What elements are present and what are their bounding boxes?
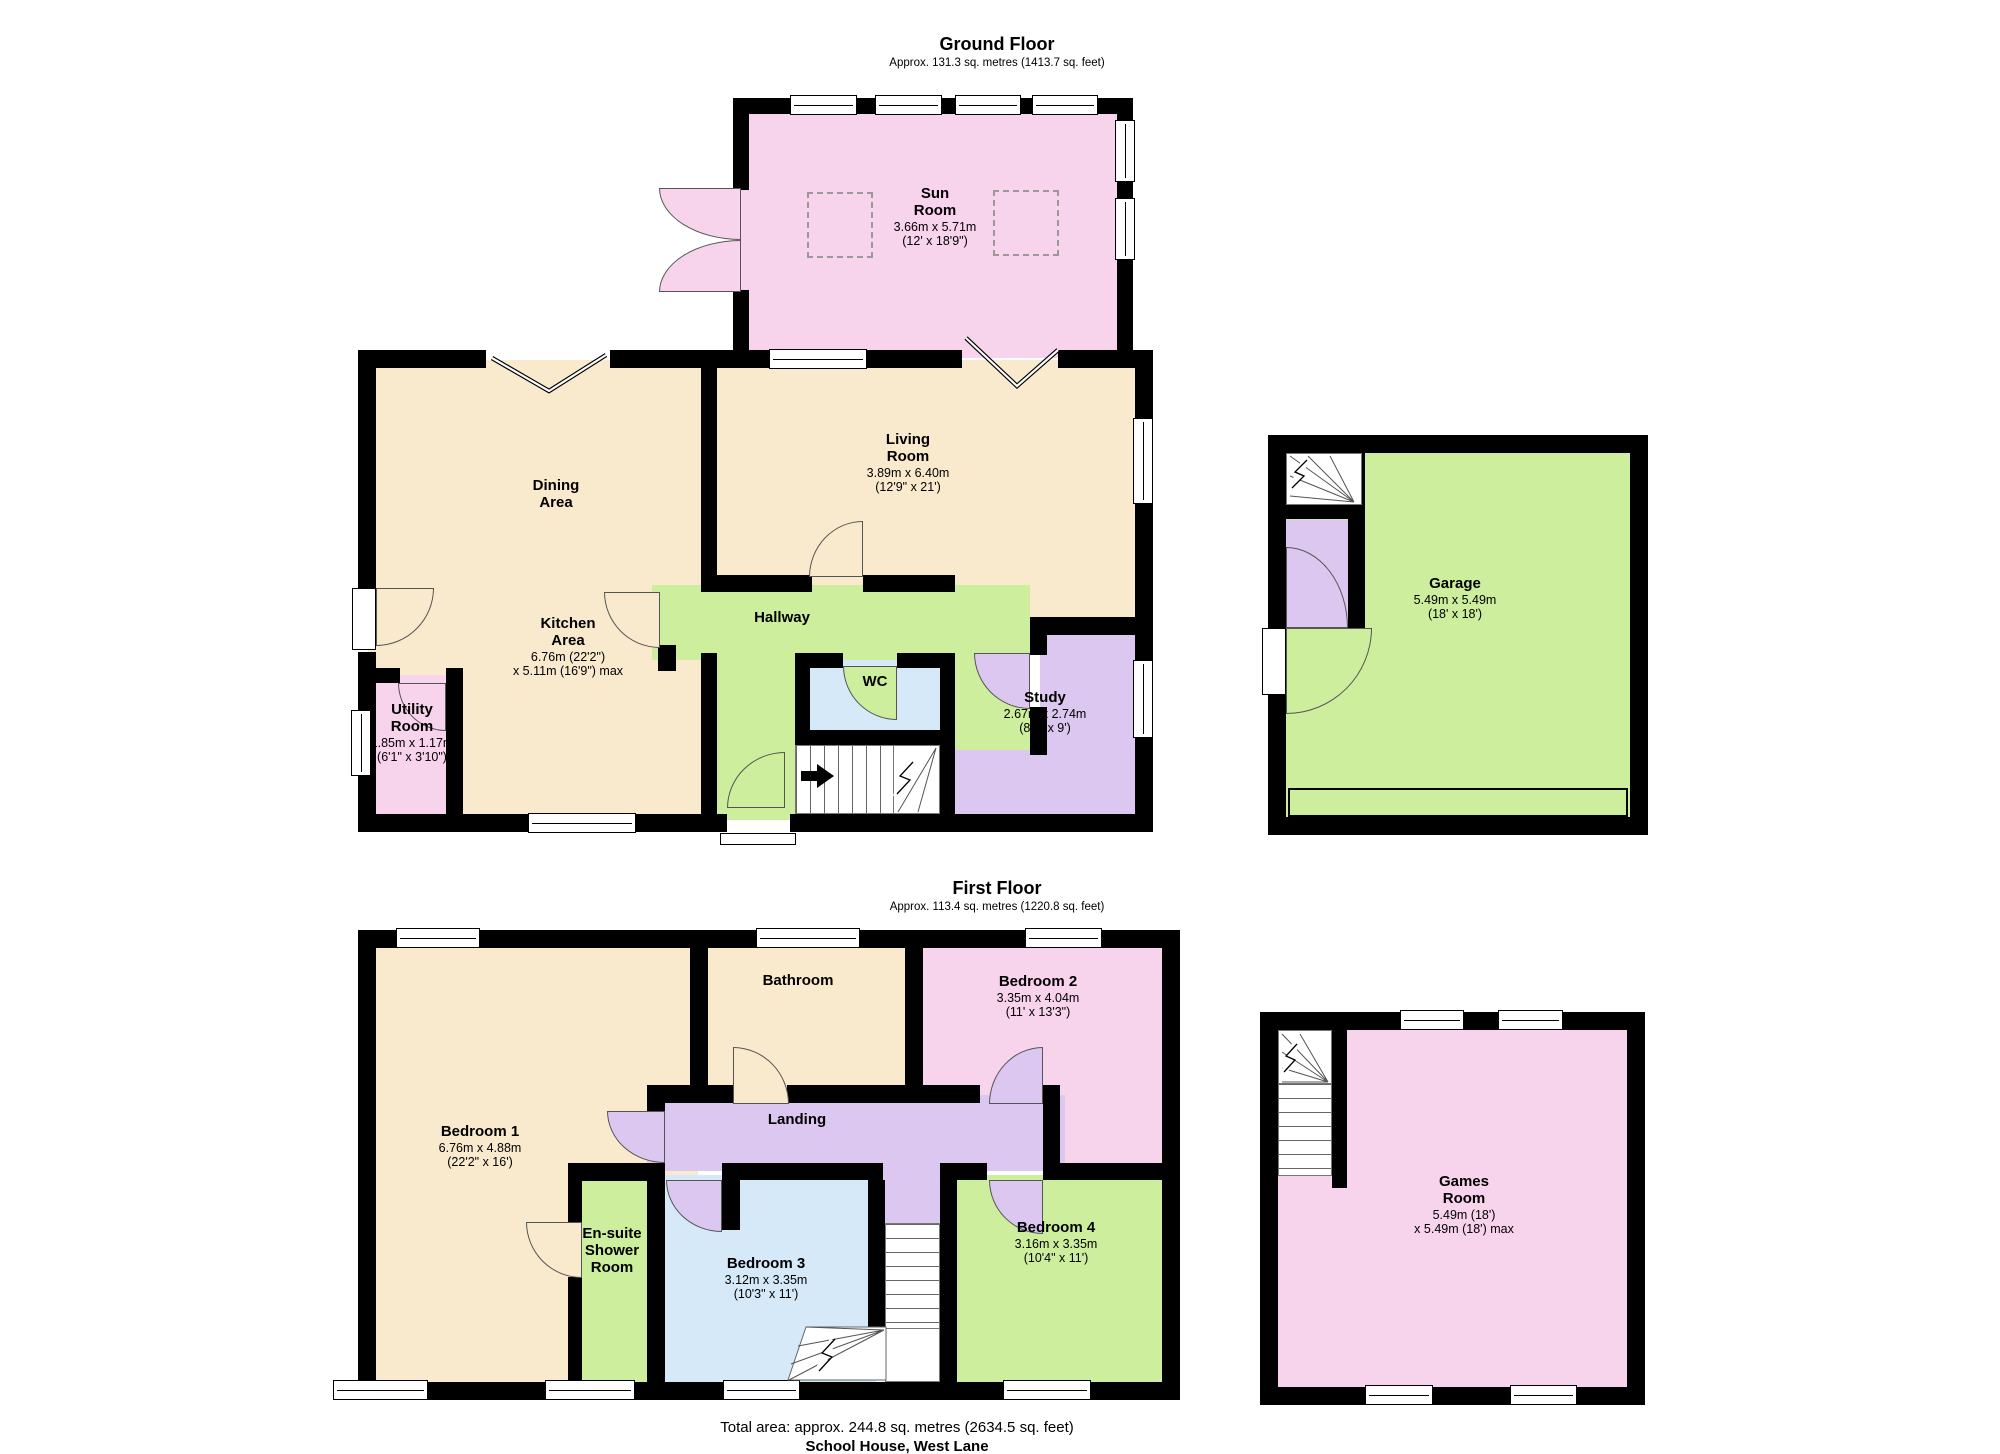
- wall: [690, 930, 708, 1090]
- wall: [1260, 1012, 1278, 1405]
- stairs: [893, 745, 940, 814]
- wall: [446, 668, 463, 683]
- stairs: [1286, 453, 1362, 505]
- door-leaf: [352, 588, 376, 650]
- room-landing: [647, 1095, 1065, 1171]
- window: [396, 928, 480, 948]
- skylight: [993, 190, 1059, 256]
- room-label-wc: WC: [863, 674, 888, 691]
- window: [1133, 418, 1153, 504]
- wall: [1627, 1012, 1645, 1405]
- window: [1115, 198, 1135, 260]
- wall: [658, 645, 676, 671]
- wall: [1268, 695, 1286, 835]
- floor-area-text: Approx. 113.4 sq. metres (1220.8 sq. fee…: [787, 901, 1207, 913]
- room-label-study: Study 2.67m x 2.74m (8'9" x 9'): [1004, 690, 1087, 735]
- room-label-games-room: Games Room 5.49m (18') x 5.49m (18') max: [1414, 1174, 1514, 1236]
- window: [1365, 1385, 1433, 1405]
- wall: [1030, 617, 1153, 635]
- room-bedroom-2: [1050, 1085, 1170, 1173]
- wall: [647, 1163, 665, 1382]
- skylight: [807, 192, 873, 258]
- porch-step: [720, 833, 796, 845]
- room-label-living-room: Living Room 3.89m x 6.40m (12'9" x 21'): [867, 432, 950, 494]
- floor-title-text: First Floor: [787, 878, 1207, 899]
- window: [769, 349, 867, 369]
- wall: [1043, 1085, 1060, 1103]
- wall: [865, 350, 962, 368]
- property-address: School House, West Lane: [805, 1438, 988, 1454]
- room-label-landing: Landing: [768, 1112, 826, 1129]
- floorplan-canvas: Ground Floor Approx. 131.3 sq. metres (1…: [0, 0, 2000, 1454]
- window: [1032, 95, 1098, 115]
- door-arc: [659, 240, 741, 292]
- wall: [795, 730, 940, 745]
- wall: [376, 668, 400, 683]
- wall: [1268, 435, 1648, 453]
- room-label-garage: Garage 5.49m x 5.49m (18' x 18'): [1414, 576, 1497, 621]
- wall: [1630, 435, 1648, 835]
- wall: [940, 653, 955, 814]
- room-label-ensuite: En-suite Shower Room: [577, 1226, 647, 1276]
- window: [528, 813, 636, 833]
- wall: [358, 930, 376, 1400]
- first-floor-title: First Floor Approx. 113.4 sq. metres (12…: [787, 878, 1207, 913]
- window: [351, 710, 371, 776]
- wall: [568, 1163, 582, 1222]
- wall: [957, 1163, 987, 1180]
- window: [1510, 1385, 1577, 1405]
- window: [875, 95, 942, 115]
- wall: [1162, 930, 1180, 1400]
- room-bedroom-4: [950, 1175, 1170, 1390]
- ground-floor-title: Ground Floor Approx. 131.3 sq. metres (1…: [787, 34, 1207, 69]
- stairs: [795, 745, 895, 814]
- window: [333, 1380, 428, 1400]
- room-label-bedroom-1: Bedroom 1 6.76m x 4.88m (22'2" x 16'): [439, 1124, 522, 1169]
- wall: [905, 1085, 980, 1103]
- window: [756, 928, 860, 948]
- wall: [738, 1163, 883, 1180]
- room-label-utility-room: Utility Room 1.85m x 1.17m (6'1" x 3'10"…: [371, 702, 454, 764]
- window: [545, 1380, 635, 1400]
- room-ensuite: [575, 1175, 655, 1390]
- garage-door: [1288, 788, 1628, 817]
- window: [1003, 1380, 1091, 1400]
- wall: [701, 352, 717, 592]
- wall: [733, 98, 749, 190]
- wall: [1332, 1030, 1347, 1188]
- wall: [1030, 635, 1047, 655]
- wall: [1268, 817, 1648, 835]
- room-label-bedroom-2: Bedroom 2 3.35m x 4.04m (11' x 13'3"): [997, 974, 1080, 1019]
- wall: [701, 653, 717, 832]
- window: [1400, 1010, 1464, 1030]
- wall: [610, 350, 771, 368]
- window: [1115, 120, 1135, 182]
- room-label-bedroom-3: Bedroom 3 3.12m x 3.35m (10'3" x 11'): [725, 1256, 808, 1301]
- room-label-bathroom: Bathroom: [763, 973, 834, 990]
- wall: [1268, 435, 1286, 628]
- window: [955, 95, 1021, 115]
- door-arc: [659, 188, 741, 240]
- window: [790, 95, 857, 115]
- room-landing: [875, 1163, 948, 1228]
- wall: [1060, 1163, 1162, 1180]
- wall: [863, 575, 955, 592]
- stairs: [885, 1328, 940, 1382]
- wall: [787, 1085, 905, 1103]
- window: [1025, 928, 1102, 948]
- window: [723, 1380, 800, 1400]
- wall: [701, 575, 812, 592]
- room-label-sun-room: Sun Room 3.66m x 5.71m (12' x 18'9"): [894, 186, 977, 248]
- wall: [1286, 505, 1362, 519]
- wall: [868, 1180, 885, 1330]
- wall: [568, 1277, 582, 1382]
- wall: [722, 1163, 740, 1230]
- room-label-bedroom-4: Bedroom 4 3.16m x 3.35m (10'4" x 11'): [1015, 1220, 1098, 1265]
- room-label-kitchen-area: Kitchen Area 6.76m (22'2") x 5.11m (16'9…: [513, 616, 623, 678]
- room-label-dining-area: Dining Area: [521, 478, 591, 512]
- stairs: [1278, 1030, 1332, 1084]
- wall: [1260, 1387, 1645, 1405]
- stairs: [1278, 1083, 1332, 1176]
- wall: [940, 1163, 957, 1382]
- wall: [358, 350, 486, 368]
- wall: [905, 930, 923, 1103]
- wall: [358, 350, 376, 590]
- wall: [795, 653, 843, 668]
- floor-title-text: Ground Floor: [787, 34, 1207, 55]
- stairs: [885, 1223, 940, 1329]
- wall: [647, 1085, 665, 1111]
- room-label-hallway: Hallway: [754, 610, 810, 627]
- wall: [790, 814, 1153, 832]
- room-study: [952, 750, 1047, 820]
- total-area-text: Total area: approx. 244.8 sq. metres (26…: [720, 1419, 1074, 1436]
- door-leaf: [1262, 628, 1286, 695]
- floor-area-text: Approx. 131.3 sq. metres (1413.7 sq. fee…: [787, 57, 1207, 69]
- wall: [1043, 1103, 1060, 1180]
- window: [1133, 660, 1153, 738]
- window: [1498, 1010, 1563, 1030]
